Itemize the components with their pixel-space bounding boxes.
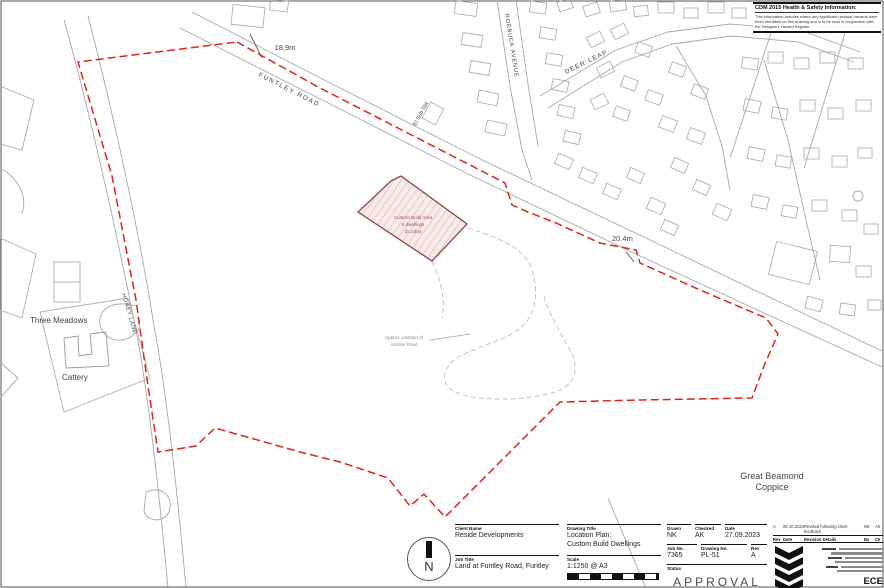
coppice-label: Coppice: [755, 482, 788, 492]
cdm-body: This information denotes where any signi…: [755, 14, 879, 29]
building-outline: [800, 100, 815, 111]
north-arrow-needle: [426, 541, 432, 558]
field-line: [804, 30, 846, 168]
rev-label: Rev: [751, 546, 767, 551]
cattery-building: [64, 332, 109, 368]
building-outline: [454, 1, 478, 17]
building-outline: [839, 303, 855, 316]
building-outline: [646, 197, 665, 214]
building-outline: [708, 2, 724, 13]
roebuck-avenue-edge: [497, 0, 532, 180]
building-outline: [805, 296, 823, 312]
building-outline: [856, 266, 871, 277]
building-outline: [596, 61, 614, 77]
dimension-ticks: [250, 34, 634, 340]
client-label: Client Name: [455, 526, 559, 531]
funtley-road-edge: [180, 28, 884, 368]
left-properties-layer: [0, 238, 150, 412]
revision-by: NK: [864, 524, 872, 534]
revision-header-rev: Rev: [773, 537, 780, 542]
building-outline: [609, 0, 627, 12]
building-outline: [477, 90, 499, 106]
substation-label: El Sub Sta: [412, 100, 430, 127]
building-outline: [557, 0, 573, 12]
scale-label: Scale: [567, 557, 661, 562]
dimension-label: 20.4m: [612, 234, 633, 243]
tree-symbol: [853, 191, 863, 201]
rev-field: Rev A: [751, 544, 767, 561]
titleblock-col-firm: A 06.10.2023 Revised following client fe…: [773, 524, 883, 588]
revision-header-ck: Ck: [875, 537, 883, 542]
location-plan-map: 18.9m 20.4m FUNTLEY ROAD ROEBUCK AVENUE …: [0, 0, 884, 588]
titleblock-col-client: Client Name Reside Developments Job Titl…: [455, 524, 559, 572]
road-label-deerleap: DEER LEAP: [564, 49, 610, 76]
building-outline: [751, 194, 769, 209]
access-road-spur: [432, 262, 443, 318]
building-outline: [626, 167, 644, 183]
drawn-value: NK: [667, 532, 691, 541]
drawing-title-label: Drawing Title: [567, 526, 661, 531]
building-outline: [469, 60, 491, 75]
building-outline: [529, 1, 546, 14]
building-outline: [610, 23, 628, 39]
job-title-label: Job Title: [455, 557, 559, 562]
revision-ck: AK: [875, 524, 883, 534]
building-outline: [858, 148, 872, 158]
building-outline: [812, 200, 827, 211]
drawing-title-field: Drawing Title Location Plan: Custom Buil…: [567, 524, 661, 550]
titleblock-col-admin: Drawn NK Checked AK Date 27.09.2023 Job …: [667, 524, 767, 588]
title-block: Client Name Reside Developments Job Titl…: [455, 524, 883, 586]
revision-rev: A: [773, 524, 780, 534]
custom-area-label: 5 dwellings: [402, 222, 425, 227]
building-outline: [658, 116, 677, 133]
date-field: Date 27.09.2023: [725, 524, 767, 541]
drawing-sheet: 18.9m 20.4m FUNTLEY ROAD ROEBUCK AVENUE …: [0, 0, 884, 588]
building-outline: [794, 58, 809, 69]
road-label-roebuck: ROEBUCK AVENUE: [503, 13, 519, 78]
building-outline: [732, 8, 746, 18]
sheet-border: [1, 1, 883, 587]
three-meadows-label: Three Meadows: [30, 316, 87, 325]
map-labels: 18.9m 20.4m FUNTLEY ROAD ROEBUCK AVENUE …: [30, 13, 804, 492]
building-outline: [741, 57, 758, 70]
building-outline: [747, 146, 765, 161]
building-outline: [461, 33, 483, 48]
job-title-field: Job Title Land at Funtley Road, Funtley: [455, 555, 559, 572]
building-outline: [621, 76, 639, 91]
revision-entry-row: A 06.10.2023 Revised following client fe…: [773, 524, 883, 534]
building-outline: [864, 224, 878, 234]
dim-tick: [250, 34, 262, 58]
building-outline: [842, 210, 857, 221]
building-outline: [768, 52, 783, 63]
date-value: 27.09.2023: [725, 532, 767, 541]
site-boundary: [78, 42, 778, 517]
ece-logo-icon: [773, 546, 805, 588]
building-outline: [269, 0, 288, 12]
building-outline: [583, 2, 601, 17]
building-outline: [660, 219, 678, 235]
drawn-field: Drawn NK: [667, 524, 691, 541]
side-street: [764, 60, 820, 280]
firm-contact-lines: ECE Architecture: [810, 546, 883, 588]
drawing-title-line2: Custom Build Dwellings: [567, 541, 661, 550]
side-street: [676, 46, 730, 190]
cattery-label: Cattery: [62, 373, 88, 382]
firm-block: ECE Architecture: [773, 546, 883, 588]
firm-name: ECE Architecture: [810, 576, 883, 588]
building-outline: [686, 128, 705, 145]
revision-header-row: Rev Date Revision Details By Ck: [773, 535, 883, 543]
checked-label: Checked: [695, 526, 721, 531]
building-outline: [669, 62, 687, 77]
road-label-funtley: FUNTLEY ROAD: [257, 72, 321, 109]
drawn-label: Drawn: [667, 526, 691, 531]
building-outline: [828, 108, 843, 119]
coppice-label: Great Beamond: [740, 471, 804, 481]
building-outline: [563, 130, 581, 144]
building-outline: [829, 245, 850, 262]
building-outline: [602, 183, 621, 200]
building-outline: [551, 79, 569, 93]
note-leader-line: [430, 334, 470, 340]
building-outline: [590, 93, 608, 109]
revision-date: 06.10.2023: [783, 524, 801, 534]
status-value: APPROVAL: [667, 575, 767, 588]
building-outline: [804, 148, 819, 159]
checked-field: Checked AK: [695, 524, 721, 541]
job-no-field: Job No. 7365: [667, 544, 697, 561]
building-outline: [554, 153, 573, 170]
access-road-loop: [444, 228, 575, 399]
field-line: [0, 168, 24, 214]
jobno-dwgno-rev-row: Job No. 7365 Drawing No. PL-51 Rev A: [667, 544, 767, 561]
building-outline: [231, 4, 265, 27]
building-outline: [645, 90, 664, 106]
client-field: Client Name Reside Developments: [455, 524, 559, 541]
building-outline: [670, 157, 688, 173]
field-line: [0, 86, 34, 150]
revision-details: Revised following client feedback: [804, 524, 861, 534]
job-no-value: 7365: [667, 552, 697, 561]
scale-value: 1:1250 @ A3: [567, 563, 661, 572]
drawing-no-value: PL-51: [701, 552, 747, 561]
rev-value: A: [751, 552, 767, 561]
building-outline: [485, 120, 507, 136]
drawn-checked-date-row: Drawn NK Checked AK Date 27.09.2023: [667, 524, 767, 541]
dim-tick: [626, 252, 634, 262]
cdm-info-box: CDM 2015 Health & Safety Information: Th…: [753, 2, 881, 33]
building-outline: [820, 52, 835, 63]
building-outline: [771, 107, 788, 120]
building-outline: [691, 84, 709, 99]
building-outline: [658, 2, 674, 13]
building-outline: [557, 104, 575, 118]
access-road-layer: [432, 228, 575, 399]
revision-header-details: Revision Details: [804, 537, 861, 542]
three-meadows-outline: [0, 238, 36, 318]
building-outline: [712, 203, 731, 220]
cdm-title: CDM 2015 Health & Safety Information:: [755, 5, 879, 13]
scale-field: Scale 1:1250 @ A3: [567, 555, 661, 581]
revision-header-by: By: [864, 537, 872, 542]
revision-header-date: Date: [783, 537, 801, 542]
building-outline: [586, 31, 604, 47]
client-value: Reside Developments: [455, 532, 559, 541]
field-blob: [144, 490, 170, 520]
checked-value: AK: [695, 532, 721, 541]
custom-area-label: Custom Build Area: [394, 215, 432, 220]
job-no-label: Job No.: [667, 546, 697, 551]
building-outline: [634, 5, 649, 16]
access-note-label: Approx. position of: [385, 335, 424, 340]
field-line: [0, 362, 18, 398]
dimension-label: 18.9m: [275, 43, 296, 52]
field-line: [730, 30, 772, 158]
building-outline: [684, 8, 698, 18]
buildings-layer: [231, 0, 881, 316]
building-outline: [635, 42, 653, 57]
status-field: Status APPROVAL: [667, 564, 767, 588]
access-note-label: Access Road: [390, 342, 418, 347]
north-arrow-letter: N: [408, 559, 450, 574]
building-outline: [868, 300, 881, 310]
building-outline: [856, 100, 871, 111]
building-outline: [848, 58, 863, 69]
building-outline: [781, 205, 798, 218]
date-label: Date: [725, 526, 767, 531]
scale-bar: [567, 573, 659, 580]
building-outline: [539, 27, 557, 40]
titleblock-col-drawing: Drawing Title Location Plan: Custom Buil…: [567, 524, 661, 580]
status-label: Status: [667, 566, 767, 571]
building-outline: [578, 167, 597, 184]
custom-area-label: (0.14ha): [404, 229, 422, 234]
roads-layer: [0, 0, 884, 588]
drawing-no-label: Drawing No.: [701, 546, 747, 551]
building-outline: [545, 53, 563, 67]
building-outline: [775, 155, 792, 168]
north-arrow: N: [407, 537, 451, 581]
building-outline: [832, 156, 847, 167]
drawing-title-line1: Location Plan:: [567, 532, 661, 541]
drawing-no-field: Drawing No. PL-51: [701, 544, 747, 561]
building-outline: [613, 106, 631, 121]
building-outline: [769, 241, 818, 284]
job-title-value: Land at Funtley Road, Funtley: [455, 563, 559, 572]
building-outline: [692, 179, 710, 195]
